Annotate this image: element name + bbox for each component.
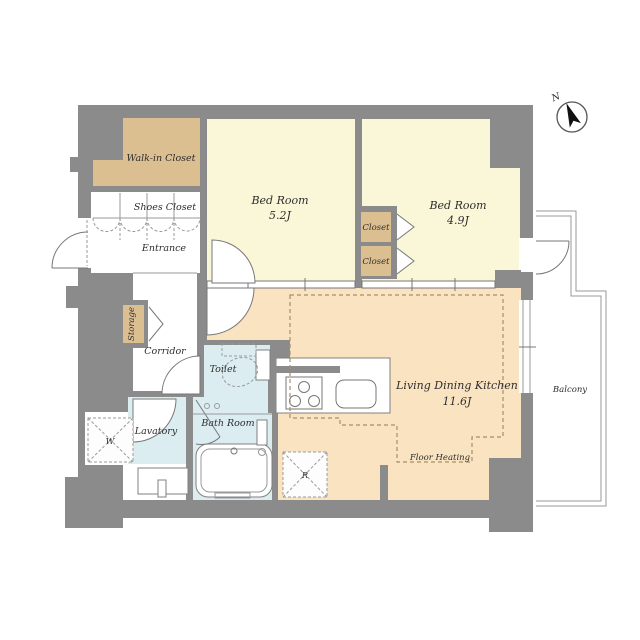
vanity-sink xyxy=(138,468,188,497)
bathroom-label: Bath Room xyxy=(200,418,254,429)
balcony-door-opening xyxy=(519,238,536,272)
ldk-size: 11.6J xyxy=(443,395,472,408)
storage-label: Storage xyxy=(127,307,137,341)
refrigerator-label: R xyxy=(301,471,309,481)
room-walk-in-closet xyxy=(123,118,200,186)
shoes-closet-label: Shoes Closet xyxy=(134,202,196,213)
washer-label: W xyxy=(106,437,116,447)
compass-north-icon xyxy=(557,101,587,132)
bedroom1-size: 5.2J xyxy=(269,209,291,222)
closet-upper-label: Closet xyxy=(362,223,390,233)
wall-block-partition-end xyxy=(495,270,521,288)
bedroom2-size: 4.9J xyxy=(446,214,469,227)
compass-north-label: N xyxy=(549,91,562,105)
toilet-label: Toilet xyxy=(210,364,237,375)
balcony-outline xyxy=(536,211,606,506)
bedroom2-label: Bed Room xyxy=(428,199,486,212)
ldk-wall-stub xyxy=(380,465,388,500)
corridor-label: Corridor xyxy=(144,346,187,357)
balcony-label: Balcony xyxy=(552,385,587,395)
entrance-label: Entrance xyxy=(141,243,187,254)
kitchen-counter xyxy=(268,358,390,413)
room-walk-in-closet-ext xyxy=(93,160,123,186)
bedroom1-label: Bed Room xyxy=(250,194,308,207)
floor-heating-label: Floor Heating xyxy=(409,453,471,463)
closet-lower-label: Closet xyxy=(362,257,390,267)
ldk-label: Living Dining Kitchen xyxy=(395,379,518,392)
entrance-door-opening xyxy=(76,218,93,268)
floor-plan: N Walk-in Closet Shoes Closet Entrance S… xyxy=(0,0,640,640)
walk-in-closet-label: Walk-in Closet xyxy=(127,153,196,164)
balcony-door xyxy=(536,241,569,274)
lavatory-label: Lavatory xyxy=(134,426,178,437)
